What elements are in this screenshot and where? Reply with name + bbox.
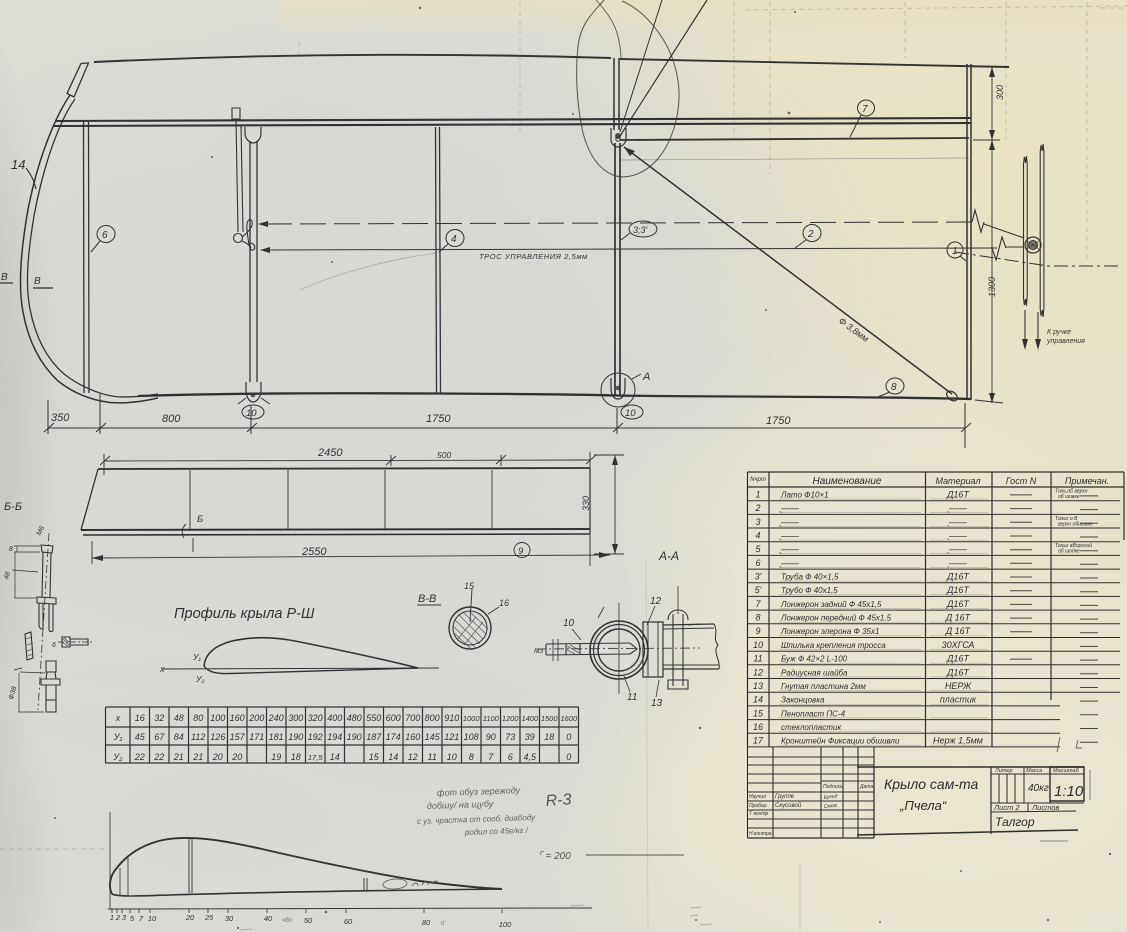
svg-text:х: х [159,664,165,674]
svg-text:22: 22 [134,752,145,762]
svg-text:об шивке: об шивке [1058,494,1080,500]
svg-text:Листов: Листов [1031,803,1059,812]
svg-text:Лонжерон элерона Ф 35х1: Лонжерон элерона Ф 35х1 [780,627,879,636]
svg-text:800: 800 [425,713,440,723]
svg-text:1600: 1600 [560,714,578,723]
svg-text:20: 20 [185,913,195,922]
svg-text:управления: управления [1046,338,1085,345]
svg-text:Лато Ф10×1: Лато Ф10×1 [780,490,829,499]
svg-text:Пробер.: Пробер. [749,803,768,809]
svg-text:25: 25 [204,913,214,922]
svg-text:171: 171 [249,732,264,742]
svg-text:15: 15 [369,752,380,762]
svg-text:Б-Б: Б-Б [4,501,22,513]
svg-text:600: 600 [386,713,401,723]
svg-text:2: 2 [807,229,814,240]
svg-text:10: 10 [753,640,763,650]
svg-text:2450: 2450 [317,447,343,459]
svg-text:Б: Б [197,514,203,525]
svg-text:13: 13 [651,698,663,709]
svg-text:160: 160 [230,713,245,723]
svg-text:700: 700 [405,713,420,723]
svg-text:чбл: чбл [282,918,292,924]
svg-text:У₁: У₁ [192,652,201,662]
svg-text:Материал: Материал [935,476,980,486]
svg-text:300: 300 [288,713,303,723]
svg-text:10: 10 [447,752,457,762]
svg-text:Дата: Дата [859,784,873,790]
svg-text:15: 15 [464,581,475,591]
svg-text:17,5: 17,5 [308,753,323,762]
svg-text:500: 500 [437,450,451,460]
svg-text:8: 8 [9,546,13,553]
svg-text:174: 174 [386,732,401,742]
svg-text:45: 45 [135,732,146,742]
svg-text:8: 8 [469,752,474,762]
svg-text:18: 18 [544,732,554,742]
svg-text:240: 240 [268,713,284,723]
svg-text:200: 200 [248,713,264,723]
svg-text:14: 14 [11,157,25,172]
svg-text:126: 126 [210,732,225,742]
svg-text:К ручке: К ручке [1047,329,1071,336]
svg-text:20: 20 [212,752,223,762]
svg-text:1300: 1300 [987,277,997,297]
svg-text:90: 90 [486,732,496,742]
svg-text:108: 108 [464,732,479,742]
svg-text:2: 2 [754,503,760,513]
svg-text:Т контр: Т контр [749,811,768,817]
svg-text:6: 6 [102,230,108,241]
svg-text:М3: М3 [534,648,543,655]
svg-text:Н.контра: Н.контра [749,831,772,837]
svg-text:х: х [115,713,121,723]
svg-text:—ֻ—: —ֻ— [779,531,800,541]
svg-text:22: 22 [153,752,164,762]
svg-text:Законцовка: Законцовка [781,696,825,705]
svg-text:4: 4 [755,531,760,541]
svg-text:1: 1 [952,246,958,257]
svg-text:А-А: А-А [658,549,679,563]
svg-text:3': 3' [755,572,762,582]
svg-text:19: 19 [271,752,281,762]
svg-text:190: 190 [347,732,362,742]
svg-text:—ֻ—: —ֻ— [947,517,968,527]
svg-text:6: 6 [52,642,56,649]
svg-text:157: 157 [230,732,246,742]
svg-text:18: 18 [291,752,301,762]
svg-text:—ֻ—: —ֻ— [779,544,800,554]
svg-text:1750: 1750 [426,413,451,425]
svg-text:39: 39 [525,732,535,742]
svg-text:13: 13 [753,681,763,691]
svg-text:У₁: У₁ [113,732,123,742]
svg-text:21: 21 [192,752,203,762]
svg-text:Д16Т: Д16Т [946,599,970,609]
svg-text:145: 145 [425,732,441,742]
svg-text:190: 190 [288,732,303,742]
svg-text:Лонжерон передний Ф 45х1,5: Лонжерон передний Ф 45х1,5 [780,614,892,623]
svg-text:В: В [34,276,41,287]
svg-text:Д16Т: Д16Т [946,489,970,499]
svg-text:В: В [1,272,8,283]
svg-text:11: 11 [753,654,762,664]
svg-text:12: 12 [408,752,418,762]
svg-text:300: 300 [995,85,1005,100]
svg-text:НЕРЖ: НЕРЖ [945,681,972,691]
svg-text:—ֻ—: —ֻ— [947,544,968,554]
svg-text:1500: 1500 [541,714,559,723]
svg-text:пластик: пластик [940,695,977,705]
svg-text:1: 1 [110,913,114,922]
svg-text:330: 330 [581,496,591,511]
svg-text:0: 0 [566,752,571,762]
svg-text:Гост N: Гост N [1006,476,1037,486]
svg-text:5': 5' [755,585,762,595]
svg-text:6: 6 [508,752,513,762]
svg-text:11: 11 [627,692,637,703]
svg-text:—ֻ—: —ֻ— [779,503,800,513]
svg-text:16: 16 [499,598,509,608]
svg-text:Кронштейн Фиксации обшивли: Кронштейн Фиксации обшивли [781,737,900,746]
svg-text:ТРОС УПРАВЛЕНИЯ 2,5мм: ТРОС УПРАВЛЕНИЯ 2,5мм [479,252,588,261]
svg-text:20: 20 [231,752,242,762]
svg-text:У₂: У₂ [112,752,123,762]
svg-text:Радиусная шайба: Радиусная шайба [781,668,848,677]
svg-text:4: 4 [451,234,457,245]
svg-text:50: 50 [304,916,313,925]
svg-text:Гнутая пластина 2мм: Гнутая пластина 2мм [781,682,866,691]
svg-text:Подпись: Подпись [823,784,843,790]
svg-text:—ֻ—: —ֻ— [779,558,800,568]
svg-text:—ֻ—: —ֻ— [779,517,800,527]
svg-text:„Пчела“: „Пчела“ [899,798,947,813]
svg-text:121: 121 [444,732,459,742]
svg-text:Д 16Т: Д 16Т [945,613,972,623]
svg-text:10: 10 [625,408,636,419]
svg-text:Д 16Т: Д 16Т [945,626,972,636]
svg-text:187: 187 [366,732,382,742]
svg-text:1100: 1100 [483,714,500,723]
svg-text:1750: 1750 [766,415,791,427]
svg-text:Трубо Ф 40х1,5: Трубо Ф 40х1,5 [781,586,838,595]
svg-text:3: 3 [755,517,760,527]
svg-text:73: 73 [505,732,515,742]
svg-text:550: 550 [366,713,381,723]
svg-text:12: 12 [753,667,763,677]
svg-text:У₂: У₂ [195,674,205,684]
svg-text:1400: 1400 [521,714,539,723]
svg-text:Масса: Масса [1026,768,1042,774]
svg-text:30ХГСА: 30ХГСА [942,640,975,650]
svg-text:1200: 1200 [502,714,520,723]
svg-text:Нерж 1,5мм: Нерж 1,5мм [933,736,983,746]
svg-text:—ֻ—: —ֻ— [947,503,968,513]
svg-text:0: 0 [566,732,571,742]
svg-text:2550: 2550 [301,546,327,558]
svg-text:Д16Т: Д16Т [946,585,970,595]
svg-text:Лонжерон задний Ф 45х1,5: Лонжерон задний Ф 45х1,5 [780,600,882,609]
svg-text:Примечан.: Примечан. [1065,476,1109,486]
svg-text:100: 100 [499,920,512,929]
svg-text:10: 10 [246,408,257,419]
svg-text:Лист 2: Лист 2 [993,803,1020,812]
svg-text:—ֻ—: —ֻ— [947,558,968,568]
svg-text:об шодке: об шодке [1058,549,1080,555]
svg-text:112: 112 [191,732,205,742]
svg-text:15: 15 [753,708,764,718]
svg-text:30: 30 [225,914,234,923]
svg-text:12: 12 [650,596,662,607]
svg-text:14: 14 [388,752,398,762]
svg-text:Талгор: Талгор [995,815,1035,829]
svg-text:4,5: 4,5 [524,752,538,762]
svg-text:Группе: Группе [775,794,795,800]
svg-text:400: 400 [327,713,342,723]
svg-text:320: 320 [308,713,323,723]
svg-text:6: 6 [755,558,760,568]
svg-text:192: 192 [308,732,323,742]
svg-text:Профиль крыла Р-Ш: Профиль крыла Р-Ш [174,606,315,622]
svg-text:8: 8 [891,382,897,393]
svg-text:181: 181 [269,732,284,742]
svg-text:3;3': 3;3' [633,225,648,235]
svg-text:60: 60 [344,917,353,926]
svg-text:Крыло сам-та: Крыло сам-та [884,776,978,792]
svg-text:11: 11 [428,752,437,762]
svg-text:Масштаб: Масштаб [1053,768,1080,774]
svg-text:Труба Ф 40×1,5: Труба Ф 40×1,5 [781,573,839,582]
svg-text:14: 14 [753,695,763,705]
svg-text:Шпилька крепления тросса: Шпилька крепления тросса [781,641,886,650]
svg-text:350: 350 [51,412,70,424]
svg-text:Буж Ф 42×2 L-100: Буж Ф 42×2 L-100 [781,655,848,664]
svg-text:194: 194 [327,732,342,742]
svg-text:48: 48 [174,713,184,723]
svg-text:160: 160 [405,732,420,742]
svg-text:Д16Т: Д16Т [946,667,970,677]
svg-text:R-3: R-3 [545,791,572,810]
svg-text:40: 40 [264,914,273,923]
svg-text:84: 84 [174,732,184,742]
svg-text:1000: 1000 [463,714,481,723]
svg-text:9: 9 [518,546,524,557]
svg-text:100: 100 [210,713,225,723]
svg-text:верхн обшивке: верхн обшивке [1058,521,1093,527]
svg-text:80: 80 [193,713,203,723]
svg-text:910: 910 [444,713,459,723]
svg-text:В-В: В-В [418,593,436,605]
svg-text:21: 21 [173,752,184,762]
svg-text:40кг: 40кг [1028,783,1049,794]
svg-text:17: 17 [753,736,764,746]
svg-text:Наименование: Наименование [812,476,881,487]
svg-text:10: 10 [148,914,157,923]
svg-text:16: 16 [135,713,145,723]
svg-text:Пенопласт ПС-4: Пенопласт ПС-4 [781,709,846,718]
svg-text:1: 1 [755,489,760,499]
svg-text:2: 2 [115,913,121,922]
svg-text:16: 16 [753,722,763,732]
svg-text:67: 67 [154,732,165,742]
svg-text:9: 9 [755,626,760,636]
svg-text:7: 7 [862,104,868,115]
svg-text:1:10: 1:10 [1054,783,1084,800]
svg-text:800: 800 [162,413,181,425]
svg-text:Д16Т: Д16Т [946,572,970,582]
svg-text:8: 8 [755,613,760,623]
svg-text:Скусовой: Скусовой [775,802,802,809]
svg-text:14: 14 [330,752,340,762]
svg-text:80: 80 [422,918,431,927]
svg-text:Д16Т: Д16Т [946,654,970,664]
svg-text:А: А [642,371,650,383]
svg-text:стеклопластик: стеклопластик [781,723,842,732]
svg-text:Научил: Научил [749,794,766,800]
svg-text:—ֻ—: —ֻ— [947,531,968,541]
svg-text:10: 10 [563,618,575,629]
svg-text:480: 480 [347,713,362,723]
svg-text:32: 32 [154,713,164,723]
svg-text:⌜ = 200: ⌜ = 200 [538,851,571,862]
svg-text:Nчрт: Nчрт [750,477,766,483]
svg-text:Литер: Литер [994,768,1013,774]
